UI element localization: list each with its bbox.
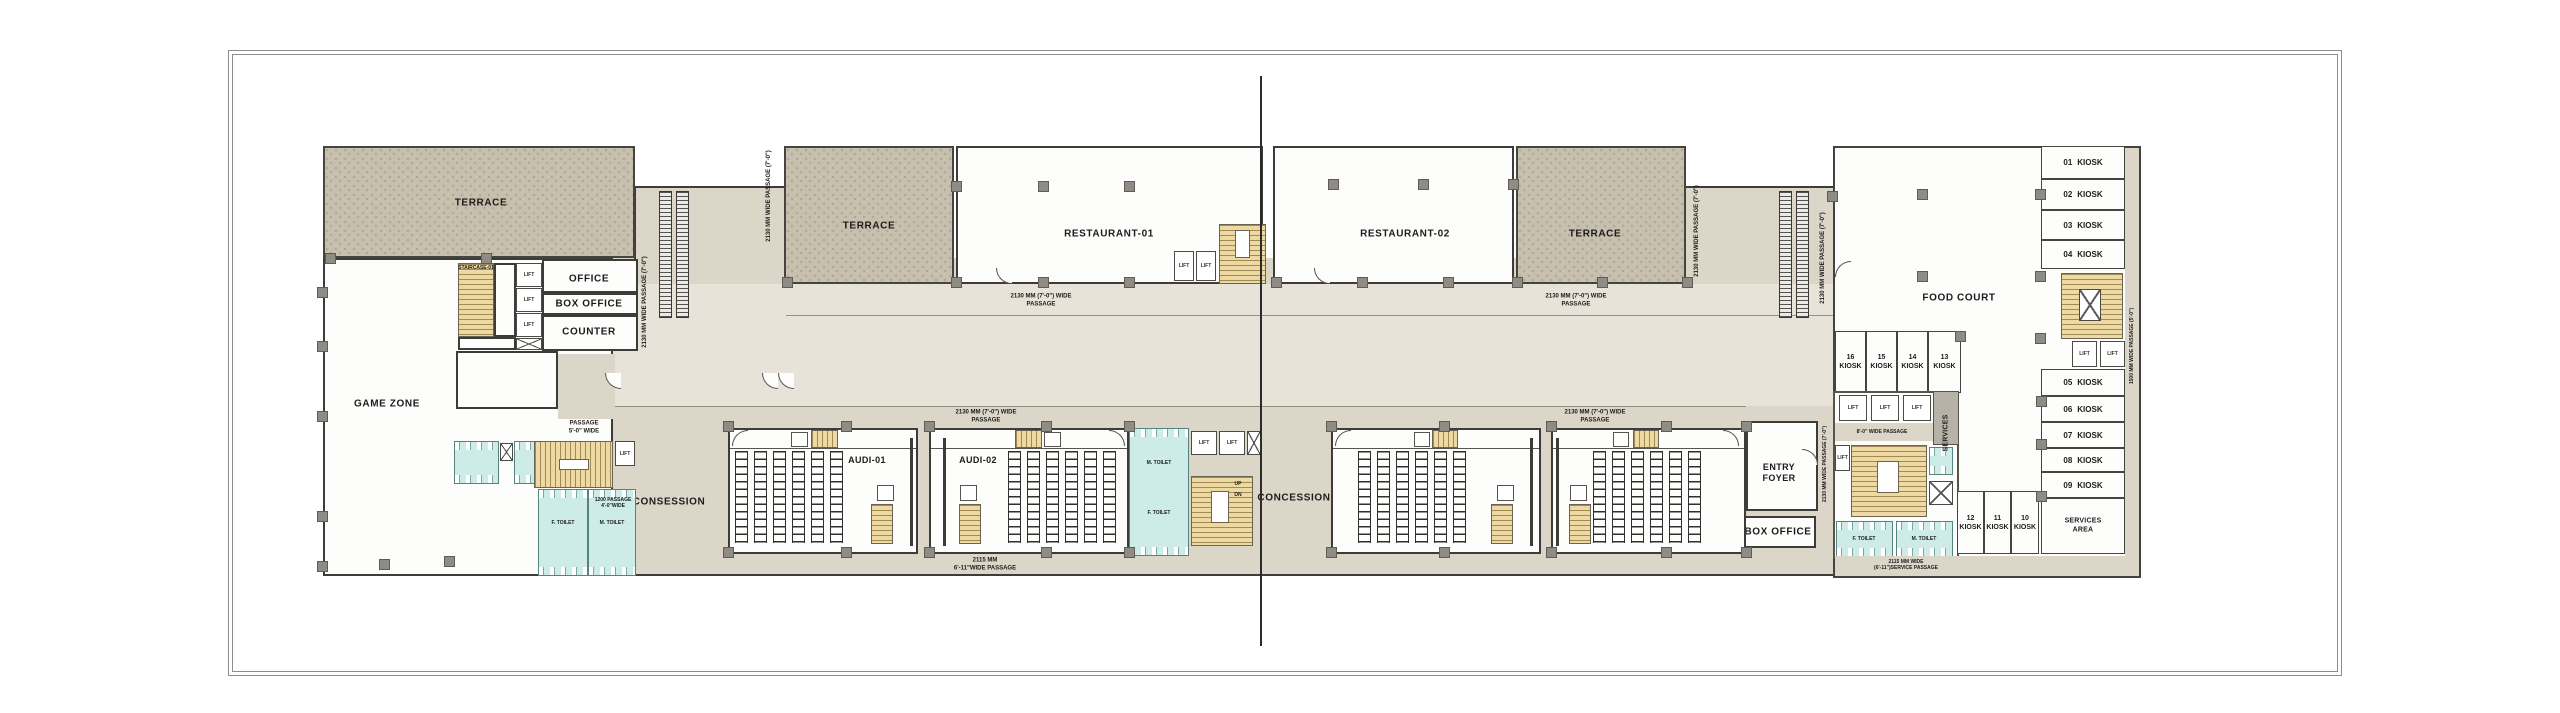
- terrace-mid-label: TERRACE: [843, 221, 896, 232]
- lift-box: LIFT: [2072, 341, 2097, 367]
- audi-stair: [1491, 504, 1513, 544]
- wall-line: [786, 315, 1833, 316]
- shaft-box: [500, 443, 513, 461]
- staircase-01: [458, 263, 494, 337]
- shaft-box: [2079, 289, 2101, 321]
- lift-box: LIFT: [516, 263, 542, 287]
- toilet-f-label: F. TOILET: [1148, 510, 1171, 516]
- audi-stair: [959, 504, 981, 544]
- passage-label-vertical: 2130 MM WIDE PASSAGE (7'-0"): [766, 150, 772, 242]
- lift-box: LIFT: [516, 313, 542, 337]
- passage-label-vertical: 2130 MM WIDE PASSAGE (7'-0"): [1694, 185, 1700, 277]
- stair-lobby: [494, 263, 516, 337]
- restaurant-01-label: RESTAURANT-01: [1064, 229, 1154, 240]
- passage-label-vertical: 2130 MM WIDE PASSAGE (7'-0"): [642, 256, 648, 348]
- terrace-mid: [784, 146, 954, 284]
- escalator-left-2: [676, 191, 689, 318]
- kiosk-10: 10 KIOSK: [2011, 491, 2039, 554]
- audi-stair: [1569, 504, 1591, 544]
- kiosk-16-number: 16: [1847, 354, 1855, 361]
- stair-landing: [1235, 230, 1250, 258]
- entry-foyer-label: ENTRY FOYER: [1762, 462, 1795, 485]
- audi-stair: [811, 430, 838, 448]
- kiosk-12: 12 KIOSK: [1957, 491, 1984, 554]
- passage-1500-label: 1500 MM WIDE PASSAGE (5'-0"): [2129, 308, 2135, 384]
- passage-5ft-label: PASSAGE 5'-0" WIDE: [569, 421, 599, 436]
- shaft-box: [1929, 481, 1953, 505]
- passage-label: 2130 MM (7'-0") WIDE PASSAGE: [1565, 410, 1626, 425]
- lift-box: LIFT: [2100, 341, 2125, 367]
- escalator-right-2: [1796, 191, 1809, 318]
- services-vertical-label: SERVICES: [1943, 415, 1950, 452]
- kiosk-04: 04KIOSK: [2041, 240, 2125, 269]
- audi-stair-box: [1414, 432, 1430, 447]
- service-passage-label: 2115 MM WIDE (6'-11")SERVICE PASSAGE: [1874, 559, 1938, 572]
- audi-stair: [1432, 430, 1458, 448]
- lift-box: LIFT: [1871, 395, 1899, 421]
- shaft-box: [516, 338, 542, 350]
- outer-wall: [1686, 186, 1833, 188]
- kiosk-label: KIOSK: [1901, 363, 1923, 370]
- lift-box: LIFT: [1839, 395, 1867, 421]
- floor-plan-canvas: TERRACE GAME ZONE STAIRCASE-01 LIFT LIFT…: [0, 0, 2560, 713]
- stair-dn-label: DN: [1234, 492, 1241, 498]
- kiosk-03: 03KIOSK: [2041, 210, 2125, 240]
- toilet-f-room-left: [538, 489, 588, 576]
- lift-box: LIFT: [516, 288, 542, 312]
- kiosk-16: 16 KIOSK: [1835, 331, 1866, 393]
- food-court-label: FOOD COURT: [1922, 293, 1995, 304]
- stair-up-label: UP: [1235, 481, 1242, 487]
- audi-stair-box: [1570, 485, 1587, 501]
- toilet-block-mid: [1129, 428, 1189, 556]
- kiosk-11: 11 KIOSK: [1984, 491, 2011, 554]
- kiosk-label: KIOSK: [1870, 363, 1892, 370]
- office-label: OFFICE: [569, 274, 609, 285]
- toilet-m-label: M. TOILET: [1912, 536, 1937, 542]
- terrace-left-label: TERRACE: [455, 198, 508, 209]
- toilet-block-left: [454, 441, 499, 484]
- kiosk-14: 14 KIOSK: [1897, 331, 1928, 393]
- restaurant-01-room: [956, 146, 1263, 284]
- terrace-right: [1516, 146, 1686, 284]
- stair-landing: [1211, 491, 1229, 523]
- kiosk-05: 05KIOSK: [2041, 369, 2125, 396]
- outer-wall-bottom: [613, 574, 1833, 576]
- kiosk-15-number: 15: [1878, 354, 1886, 361]
- audi-01-screen: [910, 438, 913, 546]
- lift-box: LIFT: [1219, 431, 1245, 455]
- toilet-f-label: F. TOILET: [552, 520, 575, 526]
- wall-line: [613, 406, 1746, 407]
- counter-label: COUNTER: [562, 327, 616, 338]
- audi-stair-box: [791, 432, 808, 447]
- audi-stair-box: [877, 485, 894, 501]
- audi-04-screen: [1556, 438, 1559, 546]
- kiosk-09: 09KIOSK: [2041, 472, 2125, 498]
- restaurant-02-room: [1273, 146, 1514, 284]
- lift-box: LIFT: [1903, 395, 1931, 421]
- passage-1200-label: 1200 PASSAGE 4'-0"WIDE: [595, 497, 632, 510]
- toilet-m-label: M. TOILET: [600, 520, 625, 526]
- restaurant-02-label: RESTAURANT-02: [1360, 229, 1450, 240]
- kiosk-14-number: 14: [1909, 354, 1917, 361]
- audi-stair-box: [1497, 485, 1514, 501]
- escalator-right-1: [1779, 191, 1792, 318]
- kiosk-06: 06KIOSK: [2041, 396, 2125, 422]
- kiosk-08: 08KIOSK: [2041, 448, 2125, 472]
- passage-label-bottom: 2115 MM 6'-11"WIDE PASSAGE: [954, 558, 1016, 573]
- audi-stair-box: [960, 485, 977, 501]
- lift-box: LIFT: [615, 441, 635, 466]
- audi-02-screen: [943, 438, 946, 546]
- kiosk-15: 15 KIOSK: [1866, 331, 1897, 393]
- box-office-left-label: BOX OFFICE: [555, 299, 622, 310]
- audi-stair-box: [1613, 432, 1629, 447]
- audi-01-label: AUDI-01: [848, 455, 886, 465]
- utility-cells: [458, 337, 516, 350]
- audi-stair: [1015, 430, 1042, 448]
- concourse-lobby-band: [613, 284, 1833, 406]
- audi-stair-box: [1044, 432, 1061, 447]
- lobby-passage-patch: [558, 354, 615, 419]
- passage-label-vertical: 2130 MM WIDE PASSAGE (7'-0"): [1820, 212, 1826, 304]
- shaft-box: [1247, 431, 1261, 455]
- box-office-right-label: BOX OFFICE: [1744, 527, 1811, 538]
- lift-box: LIFT: [1835, 445, 1850, 471]
- passage-label: 2130 MM (7'-0") WIDE PASSAGE: [956, 410, 1017, 425]
- outer-wall: [634, 186, 786, 188]
- lift-box: LIFT: [1191, 431, 1217, 455]
- terrace-right-label: TERRACE: [1569, 229, 1622, 240]
- kiosk-02: 02KIOSK: [2041, 179, 2125, 210]
- kiosk-07: 07KIOSK: [2041, 422, 2125, 448]
- kiosk-label: KIOSK: [1839, 363, 1861, 370]
- stair-landing: [1877, 461, 1899, 493]
- section-cut-line: [1260, 76, 1262, 646]
- concession-left-label: CONSESSION: [633, 497, 706, 508]
- audi-03-screen: [1530, 438, 1533, 546]
- lobby-room: [456, 351, 558, 409]
- game-zone-label: GAME ZONE: [354, 399, 420, 410]
- kiosk-01: 01KIOSK: [2041, 146, 2125, 179]
- lift-box: LIFT: [1196, 251, 1216, 281]
- passage-8ft-label: 8'-0" WIDE PASSAGE: [1857, 429, 1908, 435]
- lift-box: LIFT: [1174, 251, 1194, 281]
- kiosk-13-number: 13: [1941, 354, 1949, 361]
- toilet-f-label: F. TOILET: [1853, 536, 1876, 542]
- audi-stair: [871, 504, 893, 544]
- stair-landing: [559, 459, 589, 470]
- kiosk-label: KIOSK: [1933, 363, 1955, 370]
- passage-label-vertical: 2130 MM WIDE PASSAGE (7'-0"): [1822, 426, 1828, 502]
- toilet-m-label: M. TOILET: [1147, 460, 1172, 466]
- escalator-left-1: [659, 191, 672, 318]
- drawing-sheet: TERRACE GAME ZONE STAIRCASE-01 LIFT LIFT…: [228, 50, 2342, 676]
- passage-label: 2130 MM (7'-0") WIDE PASSAGE: [1011, 294, 1072, 309]
- audi-02-label: AUDI-02: [959, 455, 997, 465]
- staircase-01-label: STAIRCASE-01: [458, 265, 494, 271]
- services-area-label: SERVICES AREA: [2065, 517, 2102, 535]
- concession-mid-label: CONCESSION: [1257, 493, 1330, 504]
- audi-stair: [1633, 430, 1659, 448]
- passage-label: 2130 MM (7'-0") WIDE PASSAGE: [1546, 294, 1607, 309]
